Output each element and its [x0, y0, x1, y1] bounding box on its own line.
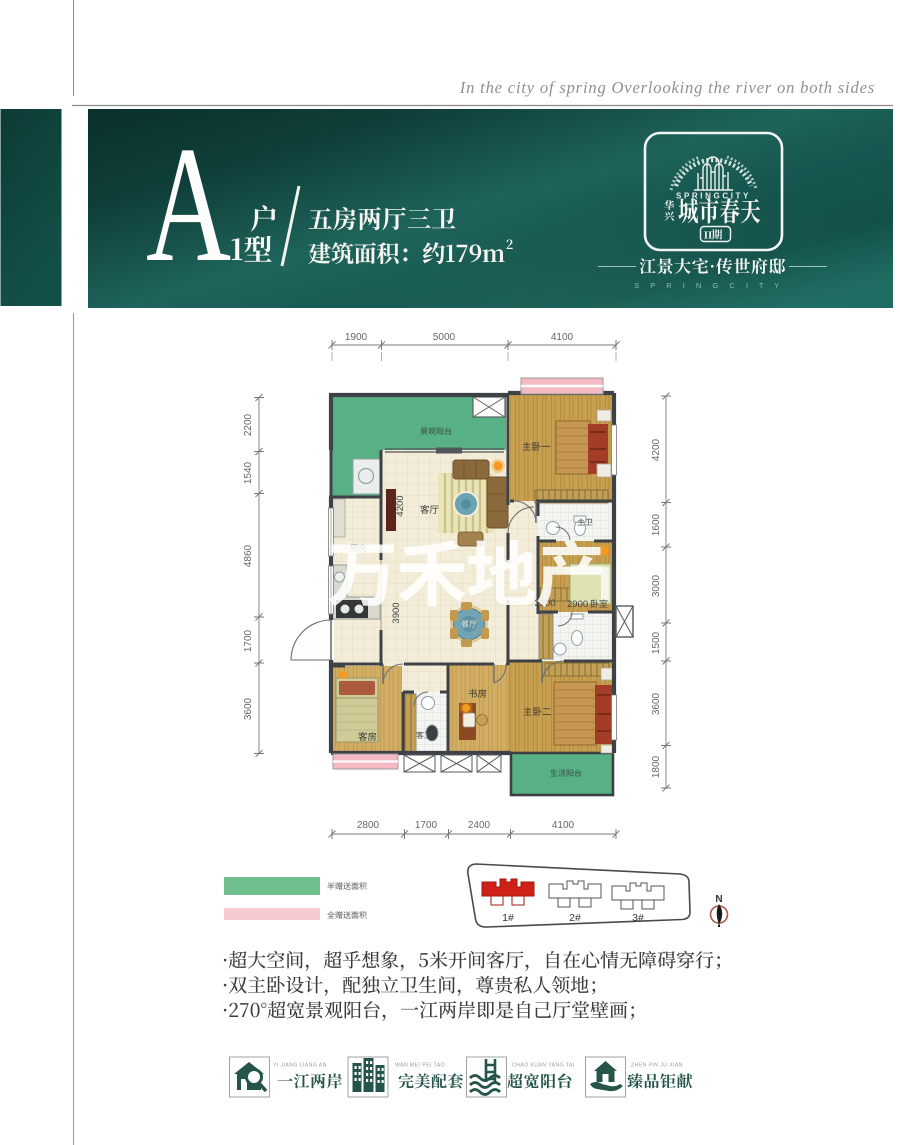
svg-text:3900: 3900 [391, 602, 402, 623]
svg-text:3600: 3600 [243, 697, 254, 720]
svg-text:3600: 3600 [651, 692, 662, 715]
svg-text:4200: 4200 [651, 438, 662, 461]
svg-text:1600: 1600 [651, 513, 662, 536]
svg-text:1700: 1700 [415, 820, 438, 831]
svg-text:2800: 2800 [357, 820, 380, 831]
svg-text:4860: 4860 [243, 544, 254, 567]
svg-text:2200: 2200 [243, 413, 254, 436]
svg-text:3#: 3# [632, 912, 644, 924]
svg-text:1900: 1900 [345, 332, 368, 343]
svg-text:4100: 4100 [552, 820, 575, 831]
svg-text:2#: 2# [569, 912, 581, 924]
svg-text:1540: 1540 [243, 461, 254, 484]
svg-text:2400: 2400 [468, 820, 491, 831]
svg-text:N: N [715, 894, 722, 905]
svg-text:1700: 1700 [243, 629, 254, 652]
svg-text:S P R I N G C I T Y: S P R I N G C I T Y [634, 281, 784, 290]
svg-text:3000: 3000 [651, 574, 662, 597]
svg-text:2900: 2900 [567, 599, 588, 610]
svg-text:A: A [146, 114, 231, 297]
svg-text:YI JIANG LIANG AN: YI JIANG LIANG AN [273, 1063, 327, 1069]
svg-text:II: II [704, 229, 713, 241]
svg-text:SPRINGCITY: SPRINGCITY [676, 192, 751, 201]
svg-text:In the city of spring Overlook: In the city of spring Overlooking the ri… [459, 78, 875, 97]
svg-text:ZHEN PIN JU XIAN: ZHEN PIN JU XIAN [631, 1063, 683, 1069]
svg-text:4100: 4100 [551, 332, 574, 343]
svg-text:4200: 4200 [395, 495, 406, 516]
svg-text:1800: 1800 [651, 755, 662, 778]
svg-text:1#: 1# [502, 912, 514, 924]
svg-text:1500: 1500 [651, 631, 662, 654]
svg-text:CHAO KUAN YANG TAI: CHAO KUAN YANG TAI [512, 1063, 575, 1069]
svg-text:WAN MEI PEI TAO: WAN MEI PEI TAO [395, 1063, 445, 1069]
svg-text:5000: 5000 [433, 332, 456, 343]
